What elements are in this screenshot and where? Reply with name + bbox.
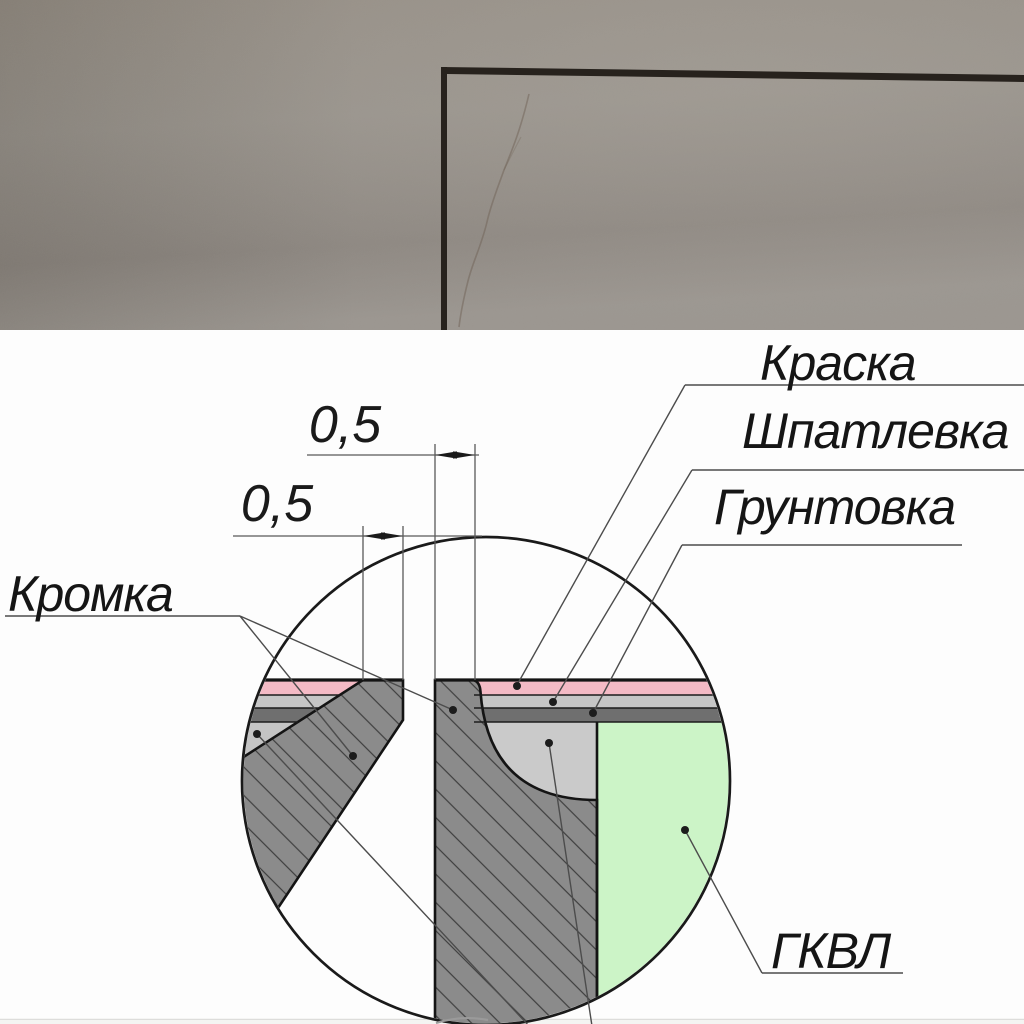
primer-label: Грунтовка (714, 479, 955, 535)
filler-dot (549, 698, 557, 706)
cutoff-dot-1 (253, 730, 261, 738)
edge-dot-2 (449, 706, 457, 714)
dim-value-top: 0,5 (309, 396, 382, 454)
crack-marker-vertical (441, 67, 447, 330)
paint-dot (513, 682, 521, 690)
board-label: ГКВЛ (771, 923, 892, 979)
scene: 0,5 0,5 Краска Шпатлевка Грунтовка Кромк… (0, 0, 1024, 1024)
photo-grain (0, 0, 1024, 330)
paint-label: Краска (760, 335, 916, 391)
edge-label: Кромка (8, 566, 173, 622)
screenshot-root: 0,5 0,5 Краска Шпатлевка Грунтовка Кромк… (0, 0, 1024, 1024)
ceiling-photo (0, 0, 1024, 330)
board-dot (681, 826, 689, 834)
filler-layer-right (470, 695, 736, 708)
primer-layer-right (470, 708, 736, 722)
filler-label: Шпатлевка (742, 403, 1009, 459)
edge-dot-1 (349, 752, 357, 760)
dim-value-left: 0,5 (241, 475, 314, 533)
primer-dot (589, 709, 597, 717)
cutoff-dot-2 (545, 739, 553, 747)
